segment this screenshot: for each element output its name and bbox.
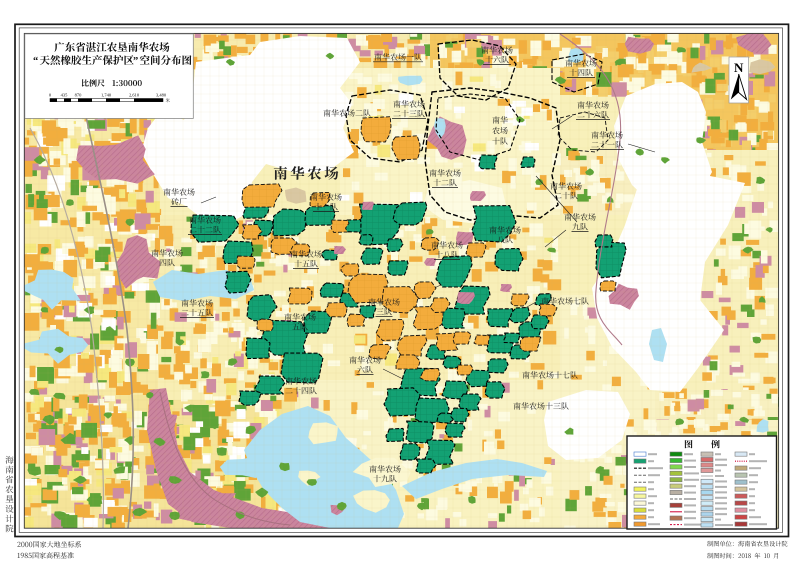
svg-text:N: N [734, 60, 744, 75]
svg-text:”: ” [133, 56, 138, 67]
svg-text:435: 435 [61, 93, 69, 98]
svg-text:“: “ [33, 56, 38, 67]
svg-text:870: 870 [75, 93, 83, 98]
